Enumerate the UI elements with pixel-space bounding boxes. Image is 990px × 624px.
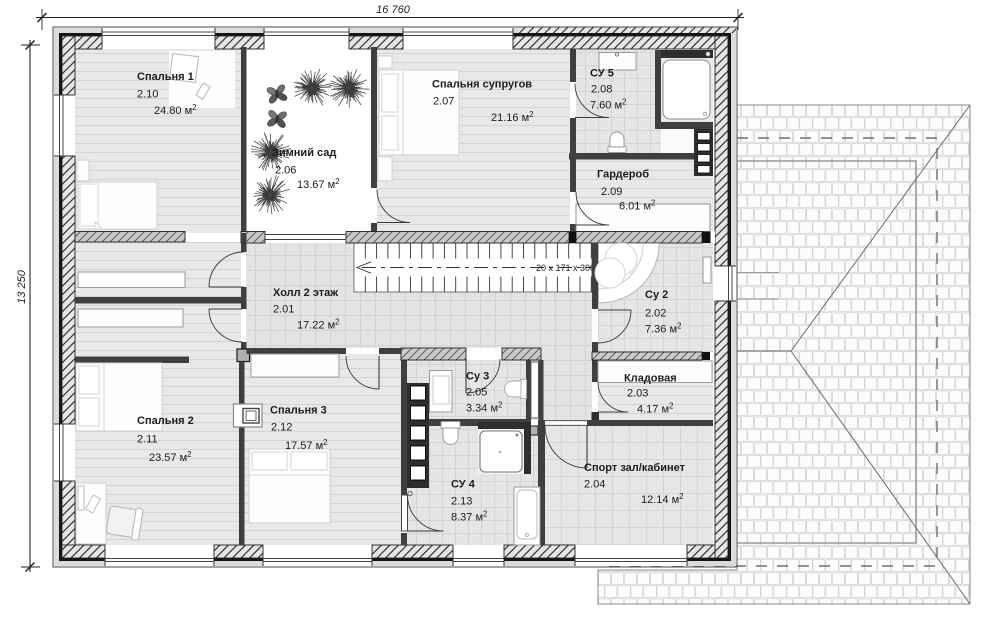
svg-text:4.17 м2: 4.17 м2: [637, 402, 673, 416]
svg-text:12.14 м2: 12.14 м2: [641, 492, 684, 506]
svg-text:СУ 4: СУ 4: [451, 479, 476, 491]
svg-text:24.80 м2: 24.80 м2: [154, 103, 197, 117]
svg-text:17.22 м2: 17.22 м2: [297, 318, 340, 332]
svg-text:Зимний сад: Зимний сад: [272, 147, 336, 159]
svg-text:Спальня 2: Спальня 2: [137, 415, 194, 427]
svg-text:Кладовая: Кладовая: [624, 373, 677, 385]
svg-text:2.07: 2.07: [433, 96, 454, 108]
svg-text:Спальня супругов: Спальня супругов: [432, 79, 532, 91]
svg-text:2.09: 2.09: [601, 186, 622, 198]
svg-text:СУ 5: СУ 5: [590, 68, 614, 80]
svg-text:2.02: 2.02: [645, 308, 666, 320]
svg-text:2.11: 2.11: [137, 434, 158, 446]
svg-text:13 250: 13 250: [16, 269, 28, 304]
svg-text:Холл 2 этаж: Холл 2 этаж: [273, 287, 338, 299]
svg-text:17.57 м2: 17.57 м2: [285, 438, 328, 452]
svg-text:3.34 м2: 3.34 м2: [466, 401, 502, 415]
svg-text:2.08: 2.08: [591, 84, 612, 96]
svg-text:20 x 171 x 300: 20 x 171 x 300: [536, 263, 595, 273]
svg-text:2.01: 2.01: [273, 304, 294, 316]
svg-text:2.13: 2.13: [451, 496, 472, 508]
svg-text:Спальня 1: Спальня 1: [137, 71, 194, 83]
svg-text:2.03: 2.03: [627, 388, 648, 400]
svg-text:13.67 м2: 13.67 м2: [297, 177, 340, 191]
svg-text:23.57 м2: 23.57 м2: [149, 450, 192, 464]
svg-text:Су 3: Су 3: [466, 371, 489, 383]
svg-text:2.05: 2.05: [466, 387, 487, 399]
svg-text:7.36 м2: 7.36 м2: [645, 322, 681, 336]
svg-text:Спорт зал/кабинет: Спорт зал/кабинет: [584, 462, 686, 474]
svg-text:2.10: 2.10: [137, 89, 158, 101]
svg-text:2.06: 2.06: [275, 165, 296, 177]
svg-text:Спальня 3: Спальня 3: [270, 405, 327, 417]
svg-text:7.60 м2: 7.60 м2: [590, 98, 626, 112]
svg-text:2.04: 2.04: [584, 479, 605, 491]
svg-text:Су 2: Су 2: [645, 289, 668, 301]
svg-text:2.12: 2.12: [271, 422, 292, 434]
svg-text:8.37 м2: 8.37 м2: [451, 510, 487, 524]
svg-text:16 760: 16 760: [376, 4, 411, 16]
svg-text:6.01 м2: 6.01 м2: [619, 199, 655, 213]
svg-text:Гардероб: Гардероб: [597, 169, 649, 181]
svg-text:21.16 м2: 21.16 м2: [491, 110, 534, 124]
